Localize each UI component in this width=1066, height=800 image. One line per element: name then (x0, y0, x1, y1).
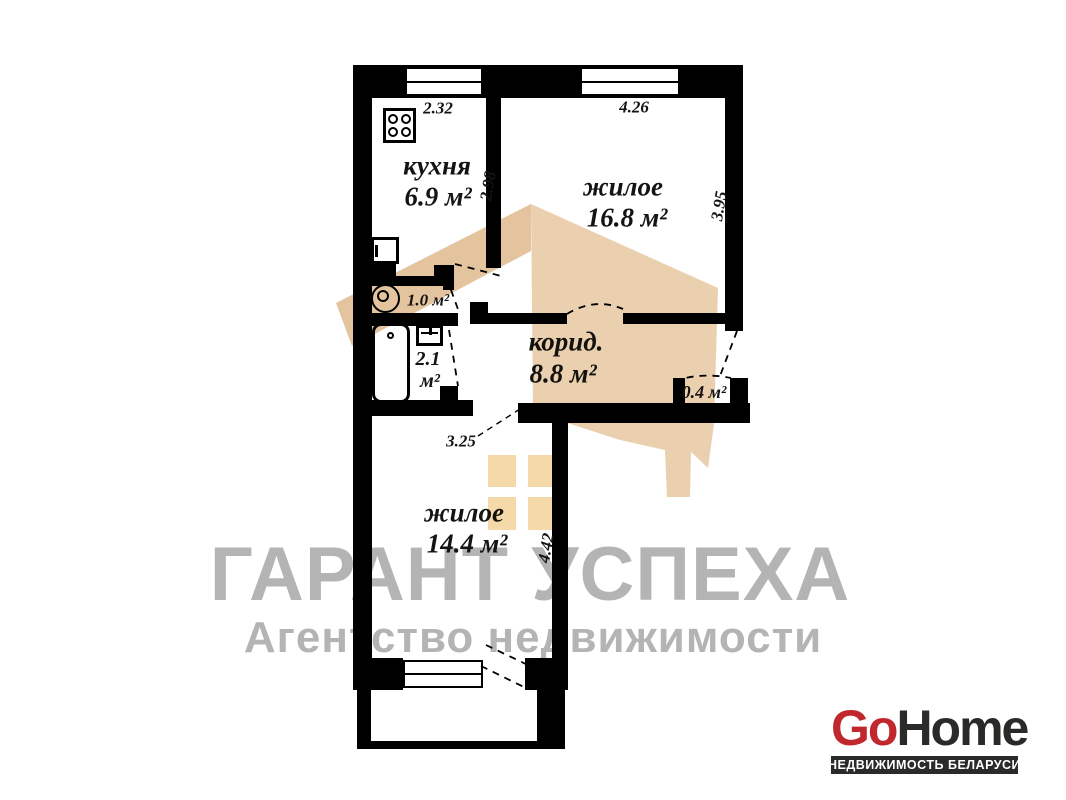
bathroom-door-line (449, 330, 458, 386)
dimension-leader-line (478, 409, 520, 436)
kitchen-sink-icon (371, 237, 399, 264)
wall-living-bottom-right (623, 313, 743, 324)
wall-room2-bottom-left (353, 658, 403, 690)
wall-toilet-right-stub (443, 276, 454, 290)
living-room-bottom-area: 14.4 м² (427, 531, 508, 558)
entry-door-line (720, 331, 737, 376)
living-room-top-depth-dim: 3.95 (708, 190, 730, 222)
kitchen-width-dim: 2.32 (423, 100, 453, 117)
agency-watermark-subtitle: Агентство недвижимости (244, 616, 822, 660)
wall-corridor-bottom (518, 403, 750, 423)
wall-left (353, 65, 372, 690)
stove-icon (383, 108, 416, 143)
bathroom-area-value: 2.1 (416, 349, 441, 369)
balcony-door-line-2 (481, 666, 528, 689)
living-room-top-width-dim: 4.26 (619, 99, 649, 116)
gohome-logo-tagline: НЕДВИЖИМОСТЬ БЕЛАРУСИ (831, 756, 1018, 774)
wall-room2-bottom-right (525, 658, 568, 690)
window-frame-line (406, 81, 482, 83)
gohome-logo-text: GoHome (831, 703, 1027, 753)
wall-corridor-corner-stub (470, 302, 488, 324)
house-watermark-window-pane (488, 455, 516, 487)
living-room-window (580, 67, 680, 96)
washbasin-icon (416, 325, 443, 346)
stove-burner-icon (401, 114, 411, 124)
living-room-bottom-label: жилое (424, 500, 504, 527)
bathroom-area-unit: м² (420, 371, 440, 391)
living-room-door-arc (567, 304, 623, 314)
room2-window (403, 660, 483, 688)
wall-storage-right (730, 378, 748, 423)
window-frame-line (404, 673, 482, 675)
storage-area: 0.4 м² (682, 383, 727, 401)
toilet-icon (371, 284, 400, 313)
wall-living-bottom-left (483, 313, 567, 324)
gohome-logo: GoHome НЕДВИЖИМОСТЬ БЕЛАРУСИ (831, 703, 1027, 774)
corridor-label: корид. (529, 329, 604, 356)
corridor-area: 8.8 м² (529, 361, 596, 388)
floorplan-page: ГАРАНТ УСПЕХА Агентство недвижимости (0, 0, 1066, 800)
kitchen-area: 6.9 м² (404, 184, 471, 211)
agency-watermark-title: ГАРАНТ УСПЕХА (210, 537, 851, 613)
living-room-top-label: жилое (583, 174, 663, 201)
wall-kitchen-bottom-left (353, 263, 396, 276)
living-room-bottom-depth-dim: 4.42 (535, 532, 557, 564)
stove-burner-icon (388, 114, 398, 124)
window-frame-line (581, 81, 679, 83)
kitchen-label: кухня (403, 153, 471, 180)
living-room-top-area: 16.8 м² (587, 205, 668, 232)
gohome-logo-home: Home (896, 700, 1027, 756)
toilet-area: 1.0 м² (407, 292, 449, 309)
stove-burner-icon (388, 127, 398, 137)
wall-bath-bottom (353, 400, 473, 416)
kitchen-depth-dim: 2.98 (477, 170, 499, 202)
wall-balcony-bottom (357, 741, 565, 749)
kitchen-window (405, 67, 483, 96)
stove-burner-icon (401, 127, 411, 137)
bathtub-icon (372, 323, 410, 403)
gohome-logo-go: Go (831, 700, 896, 756)
toilet-door-line (451, 290, 459, 312)
living-room-bottom-width-dim: 3.25 (446, 433, 476, 450)
